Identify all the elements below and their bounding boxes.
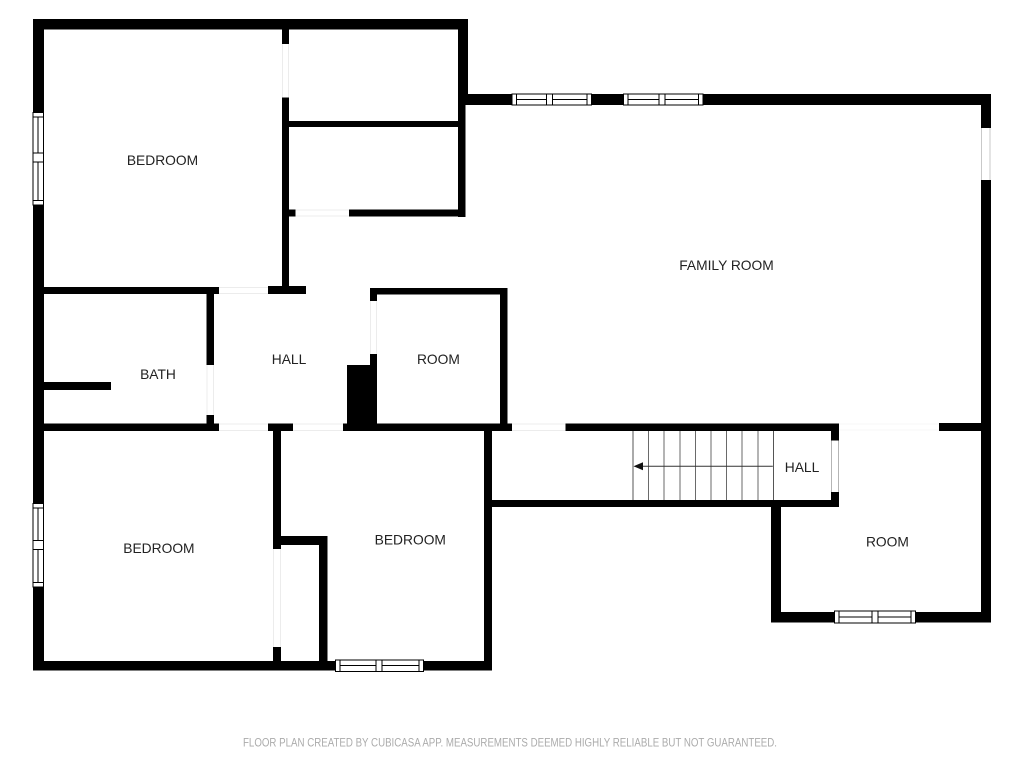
svg-text:BEDROOM: BEDROOM <box>375 533 446 548</box>
svg-text:ROOM: ROOM <box>417 352 460 367</box>
svg-text:HALL: HALL <box>272 352 307 367</box>
svg-text:BATH: BATH <box>140 367 176 382</box>
svg-text:BEDROOM: BEDROOM <box>123 541 194 556</box>
svg-text:FAMILY ROOM: FAMILY ROOM <box>679 258 774 273</box>
svg-text:FLOOR PLAN CREATED BY CUBICASA: FLOOR PLAN CREATED BY CUBICASA APP. MEAS… <box>243 738 777 750</box>
svg-text:ROOM: ROOM <box>866 535 909 550</box>
svg-text:HALL: HALL <box>785 460 820 475</box>
svg-text:BEDROOM: BEDROOM <box>127 153 198 168</box>
